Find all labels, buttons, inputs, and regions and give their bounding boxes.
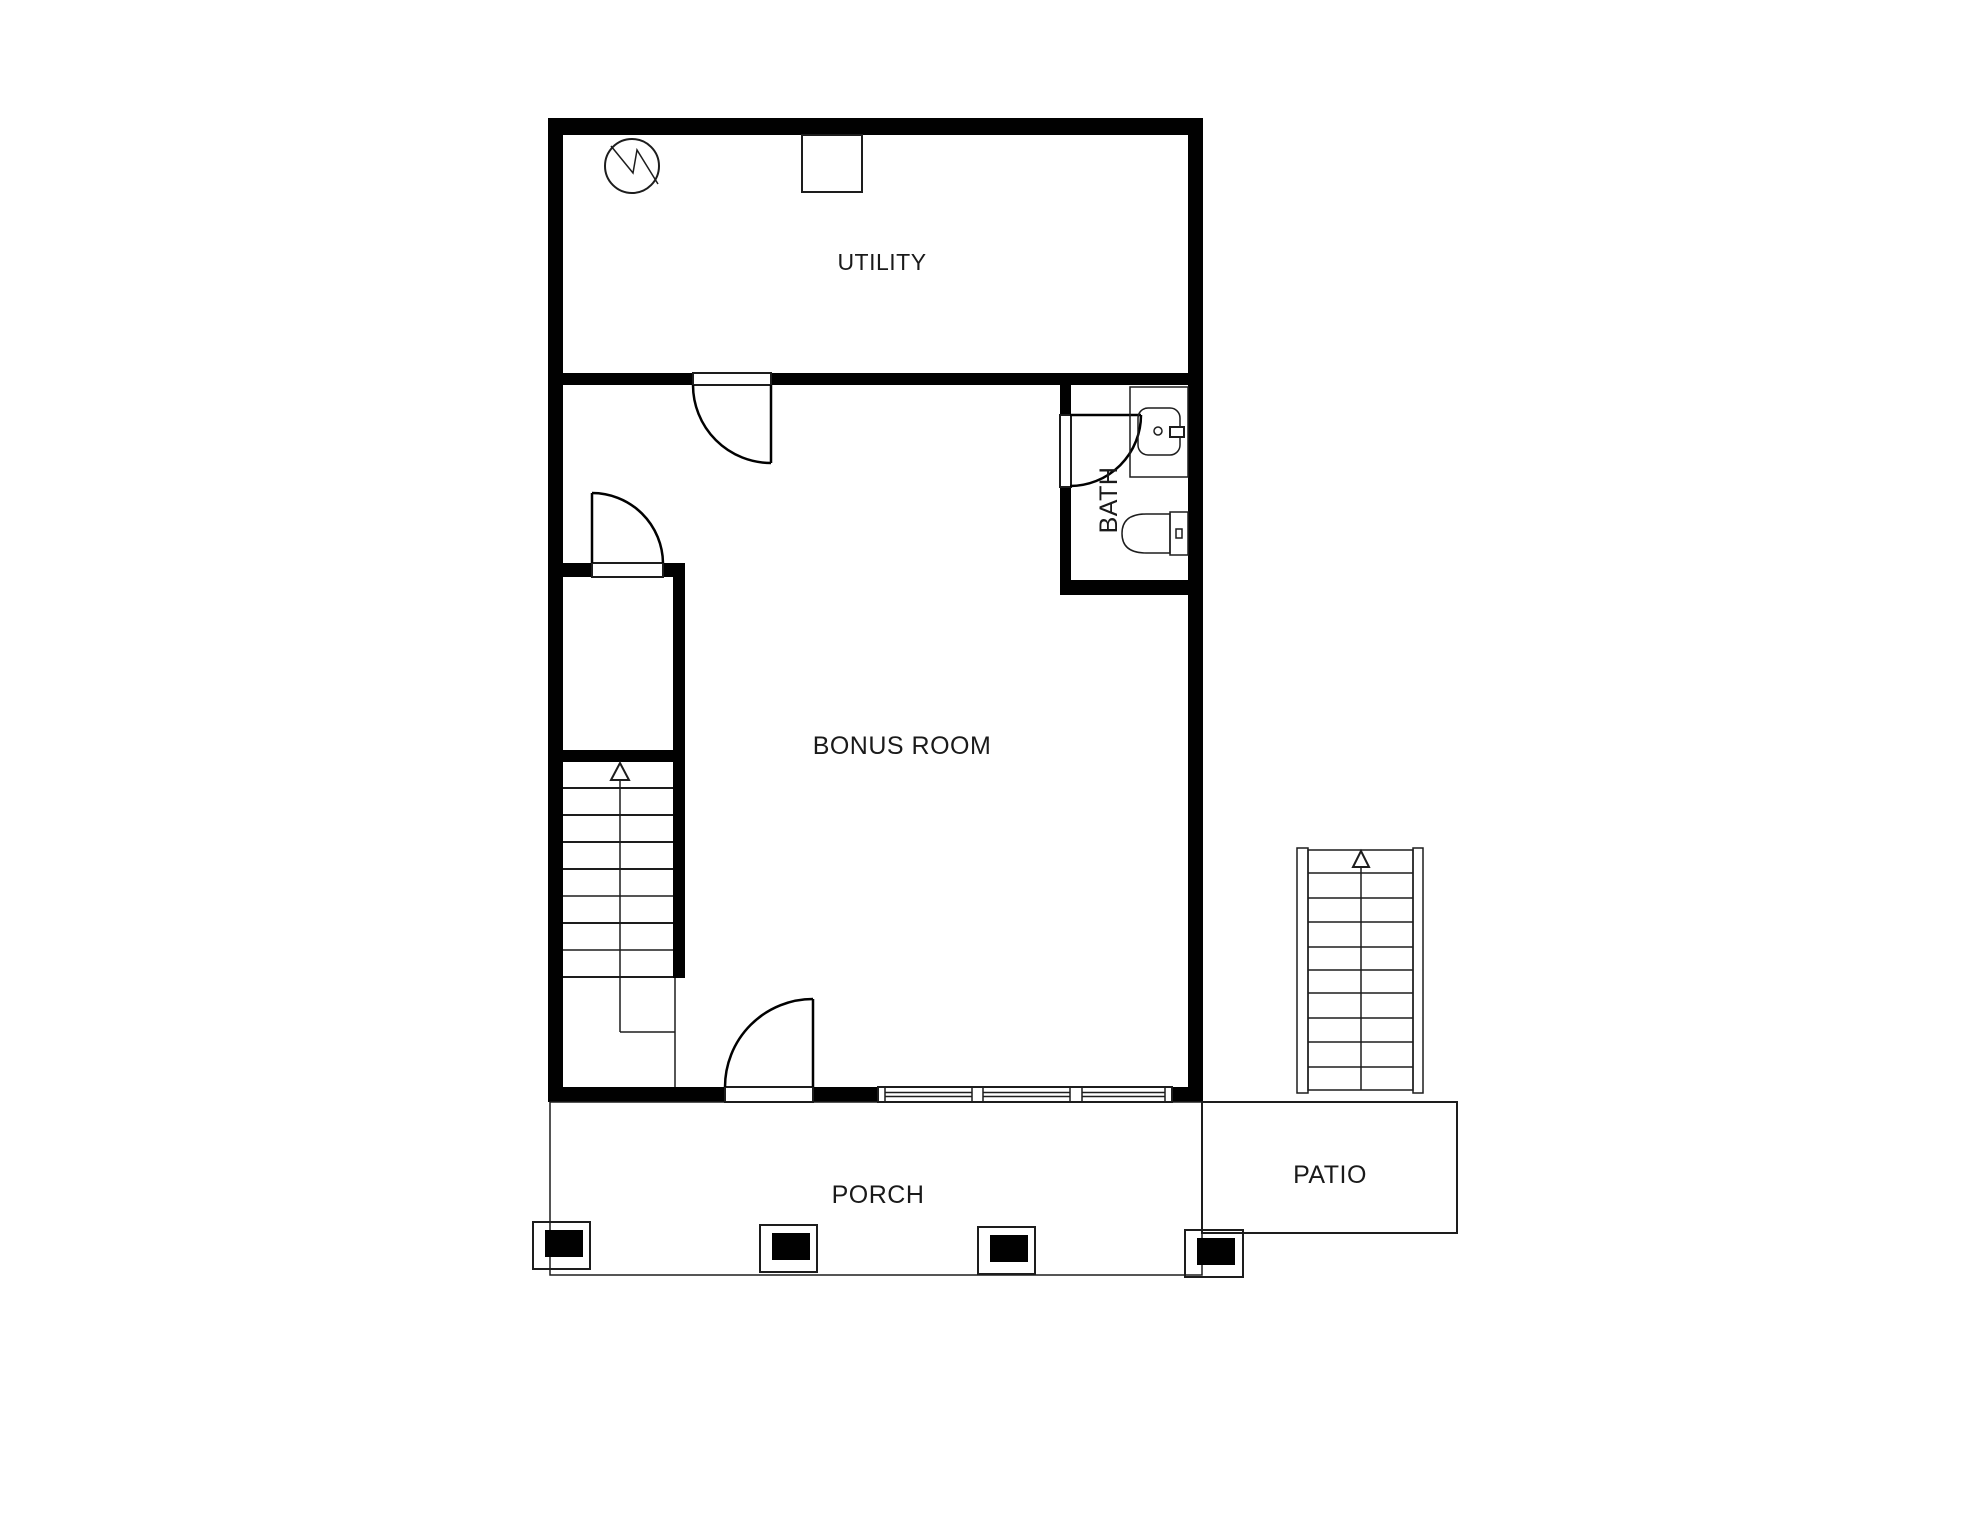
- up-arrow-icon: [1353, 851, 1369, 867]
- front-door: [725, 999, 813, 1102]
- outer-wall-top: [548, 118, 1203, 135]
- porch-post: [978, 1227, 1035, 1274]
- toilet-tank: [1170, 512, 1188, 555]
- stair-rail-right: [1413, 848, 1423, 1093]
- utility-divider-wall-right: [771, 373, 1188, 385]
- faucet-icon: [1170, 427, 1184, 437]
- utility-divider-wall-left: [563, 373, 693, 385]
- bonus-room-label: BONUS ROOM: [813, 732, 992, 760]
- bath-wall-lower: [1060, 487, 1071, 580]
- water-heater-box: [802, 135, 862, 192]
- closet-bottom-wall: [563, 750, 685, 762]
- window-band: [878, 1087, 1172, 1102]
- exterior-stairs: [1297, 848, 1423, 1093]
- outer-wall-bottom-right-segment: [1172, 1087, 1203, 1102]
- toilet-handle-icon: [1176, 529, 1182, 538]
- bath-fixtures: [1122, 387, 1188, 555]
- bath-wall-bottom: [1060, 580, 1188, 595]
- utility-equipment: [605, 135, 862, 193]
- toilet-bowl: [1122, 514, 1170, 553]
- outer-wall-bottom-mid-segment: [813, 1087, 878, 1102]
- utility-label: UTILITY: [837, 249, 926, 275]
- porch-label: PORCH: [832, 1181, 925, 1209]
- bath-label: BATH: [1095, 467, 1123, 534]
- window-frame: [878, 1087, 1172, 1102]
- door-jamb: [592, 563, 663, 577]
- door-jamb: [725, 1087, 813, 1102]
- door-swing-arc: [693, 385, 771, 463]
- patio-label: PATIO: [1293, 1161, 1367, 1189]
- interior-stairs: [563, 763, 675, 1087]
- bath-wall-upper: [1060, 385, 1071, 415]
- door-swing-arc: [725, 999, 813, 1087]
- porch-posts: [533, 1222, 1243, 1277]
- floorplan-drawing: UTILITY BONUS ROOM BATH PORCH PATIO: [0, 0, 1988, 1536]
- outer-wall-right: [1188, 118, 1203, 1102]
- up-arrow-icon: [611, 763, 629, 780]
- porch-post: [533, 1222, 590, 1269]
- door-swing-arc: [592, 493, 663, 563]
- sink-drain-icon: [1154, 427, 1162, 435]
- porch-post: [760, 1225, 817, 1272]
- bonus-room-door: [693, 373, 771, 463]
- porch-post: [1185, 1230, 1243, 1277]
- floorplan-page: UTILITY BONUS ROOM BATH PORCH PATIO: [0, 0, 1988, 1536]
- outer-wall-bottom-left-segment: [548, 1087, 725, 1102]
- stair-rail-left: [1297, 848, 1308, 1093]
- outer-wall-left: [548, 118, 563, 1102]
- stair-closet-wall-left: [563, 563, 592, 577]
- door-jamb: [1060, 415, 1071, 487]
- stair-enclosure-wall: [673, 563, 685, 978]
- stair-closet-door: [592, 493, 663, 577]
- light-fixture-icon: [605, 139, 659, 193]
- door-jamb: [693, 373, 771, 385]
